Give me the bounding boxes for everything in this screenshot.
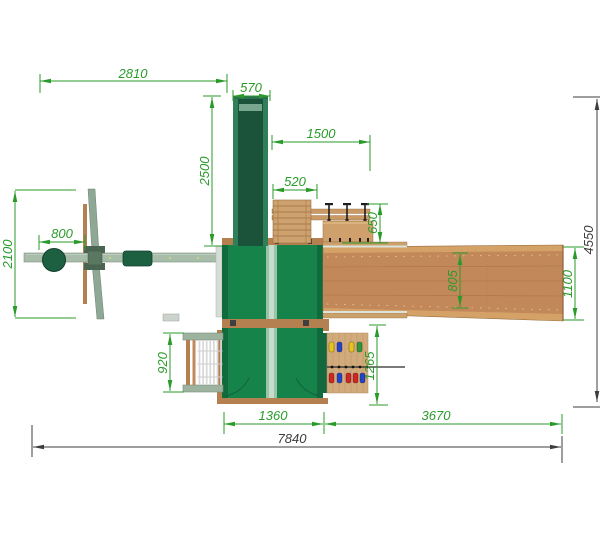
main-tower-roof [216, 238, 323, 328]
dim-swing-span: 2810 [40, 66, 227, 93]
dim-label: 2100 [0, 239, 15, 270]
dim-label: 650 [365, 211, 380, 233]
dim-ramp-span: 3670 [325, 408, 562, 434]
dim-label: 3670 [422, 408, 452, 423]
net-bracket [163, 314, 179, 321]
dim-label: 1100 [560, 269, 575, 298]
net-rail-bottom [183, 385, 223, 392]
dim-label: 1265 [362, 351, 377, 381]
second-tower-roof [217, 319, 329, 404]
dim-overall-depth: 4550 [573, 97, 600, 407]
dim-label: 4550 [581, 225, 596, 255]
flat-swing-seat [123, 251, 152, 266]
dim-overall-length: 7840 [32, 425, 562, 463]
slide-exit-lip [239, 104, 262, 111]
dim-label: 570 [240, 80, 262, 95]
ramp-surface [323, 251, 563, 314]
dim-ladder-width: 520 [273, 174, 317, 199]
swing-assembly [24, 189, 224, 319]
dim-label: 1500 [307, 126, 337, 141]
dim-net-width: 920 [155, 333, 184, 392]
dim-label: 1360 [259, 408, 289, 423]
dim-label: 2500 [197, 156, 212, 187]
dim-label: 805 [445, 269, 460, 291]
tower-bottom-wood [217, 398, 328, 404]
aframe-leg-bottom [92, 263, 104, 319]
slide-rail-right [263, 96, 268, 246]
dim-label: 520 [284, 174, 306, 189]
dim-label: 2810 [118, 66, 149, 81]
dim-label: 920 [155, 351, 170, 373]
wooden-ramp [323, 242, 563, 321]
dim-tower-width: 1360 [224, 408, 324, 434]
dim-monkeybar-span: 1500 [272, 126, 370, 171]
net-climber [163, 314, 223, 392]
playground-plan-svg: 2810 570 2500 1500 520 650 [0, 0, 600, 537]
slide-chute [238, 96, 263, 246]
disc-swing-seat [43, 249, 66, 272]
aframe-leg-top [88, 189, 99, 252]
dim-label: 800 [51, 226, 73, 241]
dim-slide-length: 2500 [197, 96, 222, 246]
slide [233, 96, 268, 246]
net-rail-top [183, 333, 223, 340]
net-ropes [200, 340, 222, 385]
slide-rail-left [233, 96, 238, 246]
access-ladder [273, 200, 311, 243]
tower-side-board [216, 246, 222, 317]
dim-swing-seat-offset: 800 [39, 226, 85, 250]
drawing-canvas: 2810 570 2500 1500 520 650 [0, 0, 600, 537]
dim-label: 7840 [278, 431, 308, 446]
beam-clamp [88, 251, 102, 265]
